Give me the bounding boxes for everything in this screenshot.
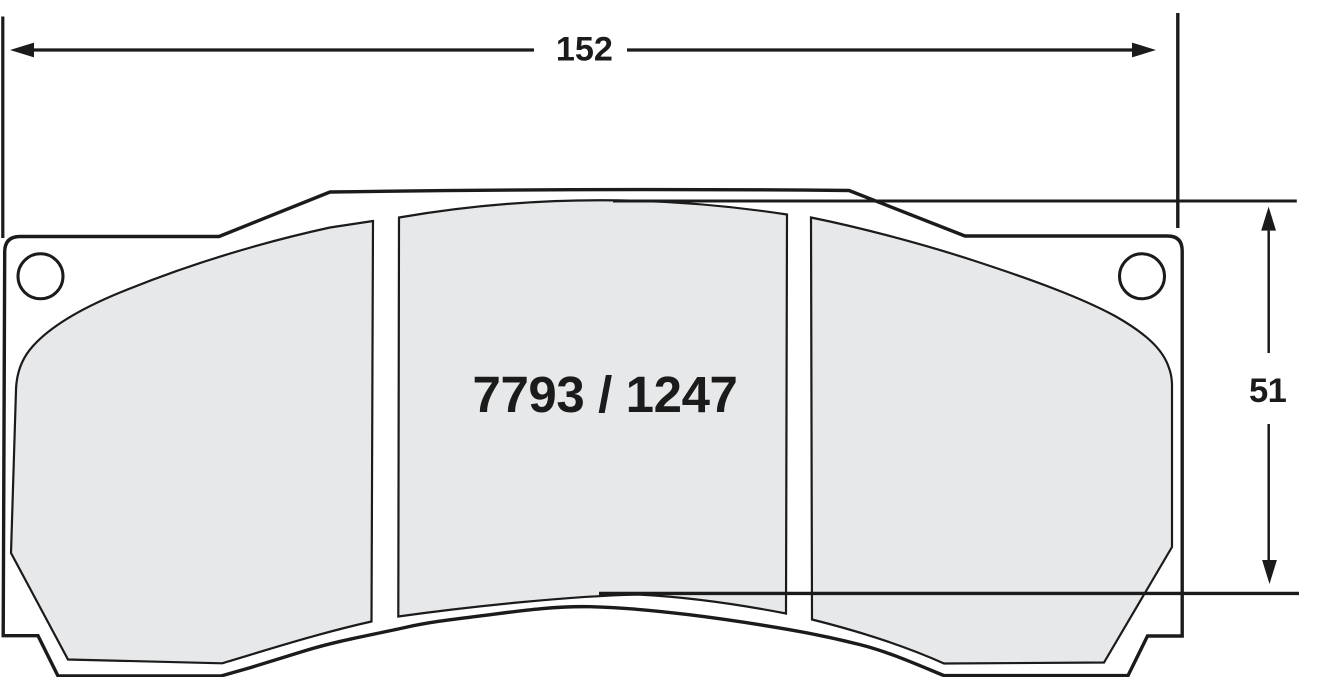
svg-text:7793 / 1247: 7793 / 1247 (472, 366, 737, 423)
svg-text:152: 152 (556, 30, 613, 68)
svg-text:51: 51 (1249, 372, 1287, 410)
